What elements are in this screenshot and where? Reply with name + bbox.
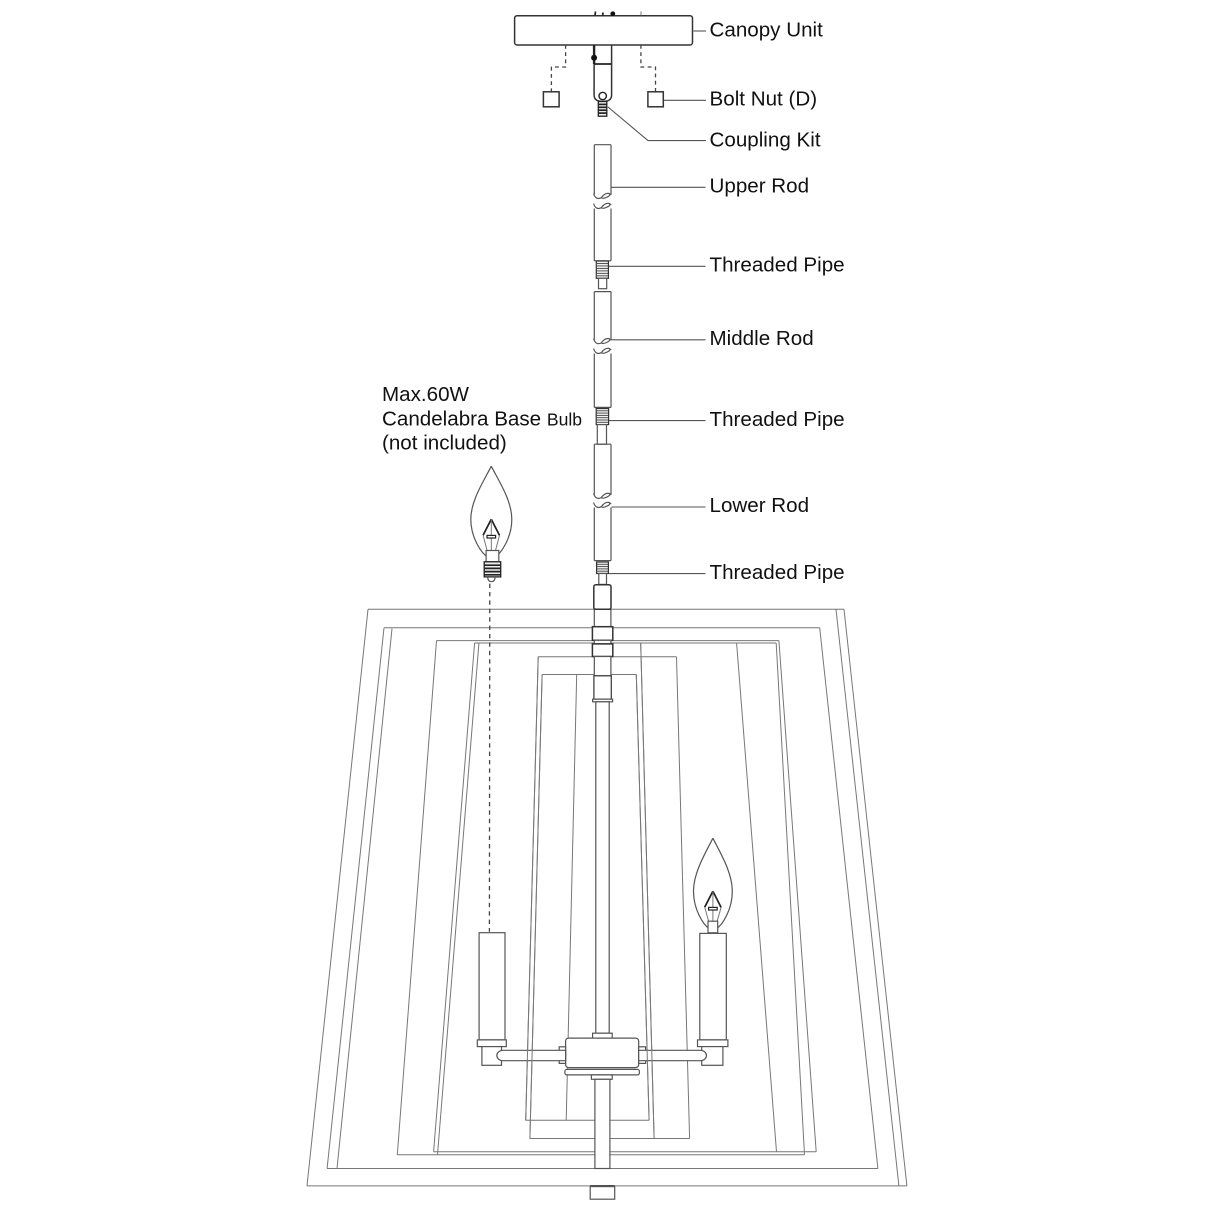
svg-text:Bolt Nut (D): Bolt Nut (D) <box>710 88 818 111</box>
svg-text:Upper Rod: Upper Rod <box>710 175 810 198</box>
svg-text:Canopy Unit: Canopy Unit <box>710 18 824 41</box>
svg-text:(not included): (not included) <box>382 431 507 454</box>
svg-text:Threaded Pipe: Threaded Pipe <box>710 561 845 584</box>
svg-text:Threaded Pipe: Threaded Pipe <box>710 254 845 277</box>
svg-text:Threaded Pipe: Threaded Pipe <box>710 408 845 431</box>
svg-text:Candelabra Base Bulb: Candelabra Base Bulb <box>382 408 582 431</box>
svg-text:Middle Rod: Middle Rod <box>710 327 814 350</box>
svg-text:Max.60W: Max.60W <box>382 383 470 406</box>
svg-text:Lower Rod: Lower Rod <box>710 494 810 517</box>
svg-text:Coupling Kit: Coupling Kit <box>710 129 821 152</box>
